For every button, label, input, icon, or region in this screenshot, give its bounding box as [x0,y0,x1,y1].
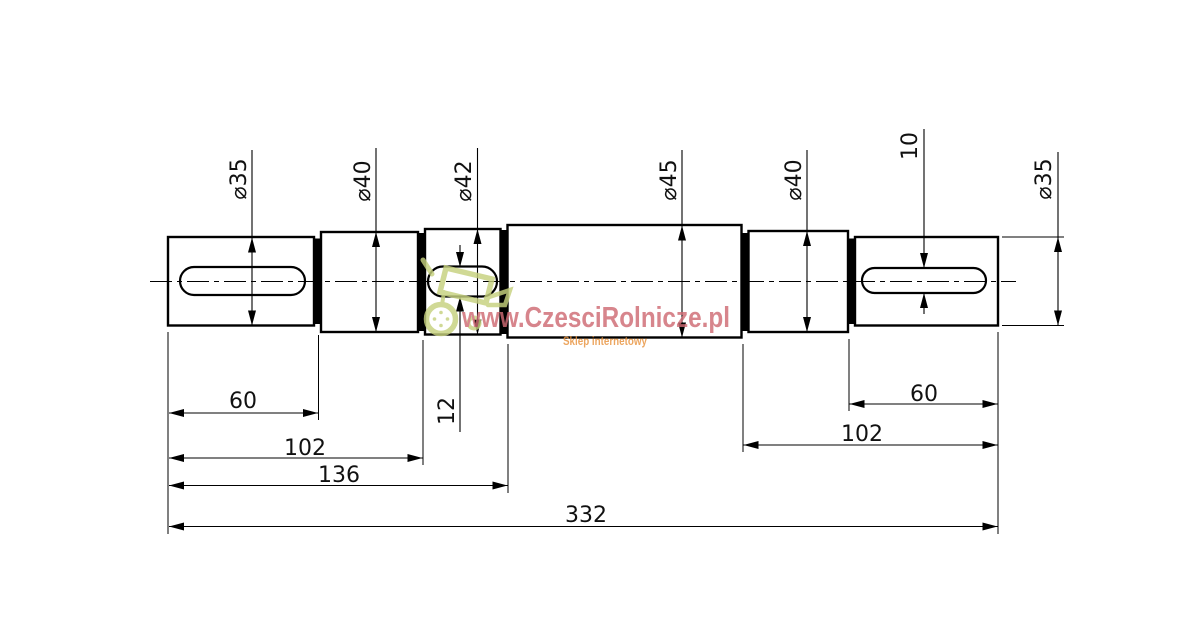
wheel-lug-icon [433,317,437,321]
dim-60-right: 60 [850,382,998,408]
arrowhead [983,441,998,449]
wheel-lug-icon [446,317,450,321]
dim-label-keyway-10: 10 [898,132,923,160]
tractor-link-icon [442,292,444,305]
dim-102-right: 102 [744,422,998,449]
dim-label-keyway-12: 12 [435,397,460,425]
dim-label-102-left: 102 [284,436,326,461]
dim-label-d42: ⌀42 [452,160,477,201]
dim-label-136: 136 [318,463,360,488]
dim-label-d35-right: ⌀35 [1032,158,1057,199]
dim-label-d40-right: ⌀40 [782,159,807,200]
technical-drawing-page: ⌀35 ⌀40 ⌀42 ⌀45 ⌀40 10 ⌀35 [0,0,1178,617]
arrowhead [850,400,865,408]
arrowhead [169,523,184,531]
arrowhead [983,400,998,408]
dim-136: 136 [169,463,508,490]
dim-label-d40-left: ⌀40 [351,160,376,201]
dim-label-60-right: 60 [910,382,938,407]
dim-60-left: 60 [169,389,318,417]
arrowhead [303,409,318,417]
watermark-url-text: www.CzesciRolnicze.pl [461,302,730,334]
dim-label-102-right: 102 [841,422,883,447]
arrowhead [169,454,184,462]
arrowhead [983,523,998,531]
arrowhead [169,482,184,490]
dim-label-d35-left: ⌀35 [227,158,252,199]
arrowhead [1054,311,1062,326]
dim-102-left: 102 [169,436,423,462]
shaft-drawing-canvas: ⌀35 ⌀40 ⌀42 ⌀45 ⌀40 10 ⌀35 [0,0,1178,617]
wheel-lug-icon [439,324,443,328]
arrowhead [744,441,759,449]
dim-label-60-left: 60 [229,389,257,414]
arrowhead [1054,237,1062,252]
dim-label-d45: ⌀45 [657,159,682,200]
dim-d35-right: ⌀35 [1002,152,1064,326]
dim-332-total: 332 [169,503,998,531]
arrowhead [493,482,508,490]
arrowhead [169,409,184,417]
arrowhead [408,454,423,462]
dim-label-332: 332 [565,503,607,528]
wheel-lug-icon [439,311,443,315]
watermark-tagline-text: Sklep internetowy [563,334,647,348]
